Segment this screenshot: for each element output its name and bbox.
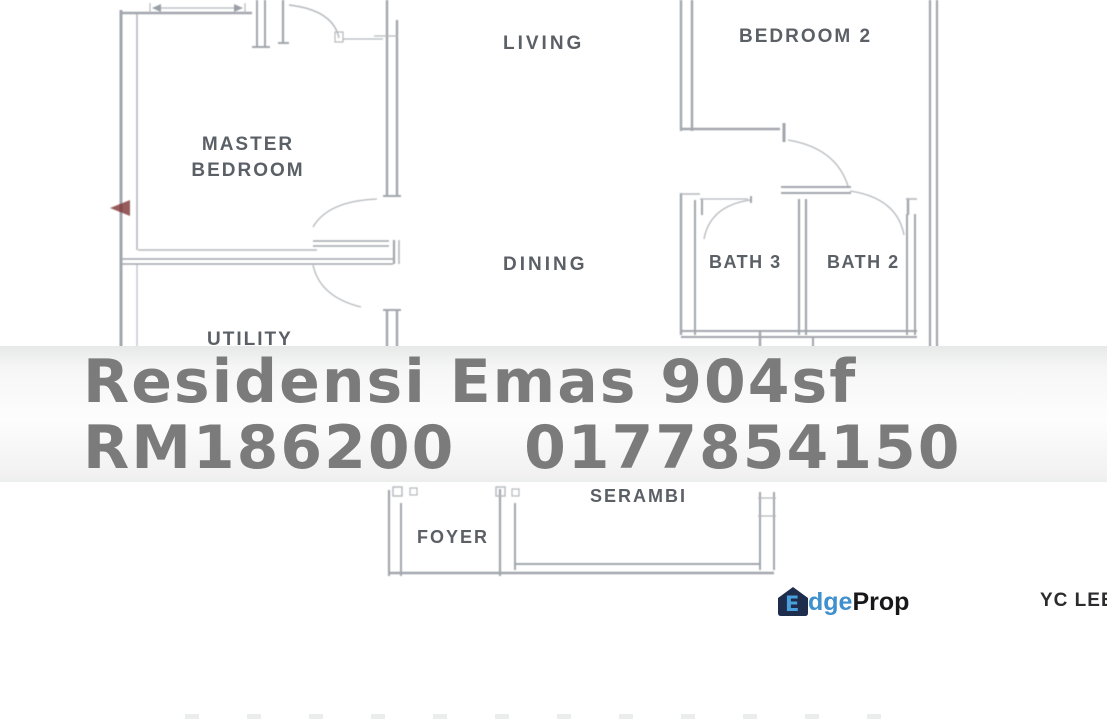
edgeprop-logo-text-prop: Prop: [852, 584, 909, 620]
room-label-bath-3: BATH 3: [709, 252, 782, 273]
room-label-foyer: FOYER: [417, 527, 489, 548]
right-exterior-wall: [930, 0, 937, 351]
utility-wall: [121, 250, 393, 264]
listing-price-phone-text: RM186200 0177854150: [83, 418, 962, 478]
cropped-bottom-text: [185, 714, 915, 719]
edgeprop-logo: E dgeProp: [776, 584, 909, 620]
floor-plan-image: LIVING BEDROOM 2 MASTER BEDROOM DINING B…: [0, 0, 1107, 720]
watermark-row: E dgeProp YC LEE: [0, 584, 1107, 622]
room-label-master-line2: BEDROOM: [168, 158, 328, 184]
room-label-living: LIVING: [503, 33, 584, 55]
listing-title-text: Residensi Emas 904sf: [83, 352, 857, 412]
master-living-wall: [374, 0, 401, 350]
edgeprop-logo-text-dge: dge: [808, 584, 852, 620]
room-label-master-line1: MASTER: [168, 132, 328, 158]
room-label-bedroom-2: BEDROOM 2: [739, 26, 872, 48]
agent-name-text: YC LEE: [1040, 590, 1107, 612]
entry-door: [252, 0, 383, 47]
edgeprop-house-icon: E: [776, 585, 810, 619]
room-label-master-bedroom: MASTER BEDROOM: [168, 132, 328, 184]
master-bedroom-door: [313, 199, 399, 307]
room-label-bath-2: BATH 2: [827, 252, 900, 273]
red-pointer-icon: [110, 200, 130, 216]
room-label-dining: DINING: [503, 254, 588, 276]
room-label-serambi: SERAMBI: [590, 486, 687, 507]
edgeprop-icon-letter: E: [785, 592, 799, 616]
